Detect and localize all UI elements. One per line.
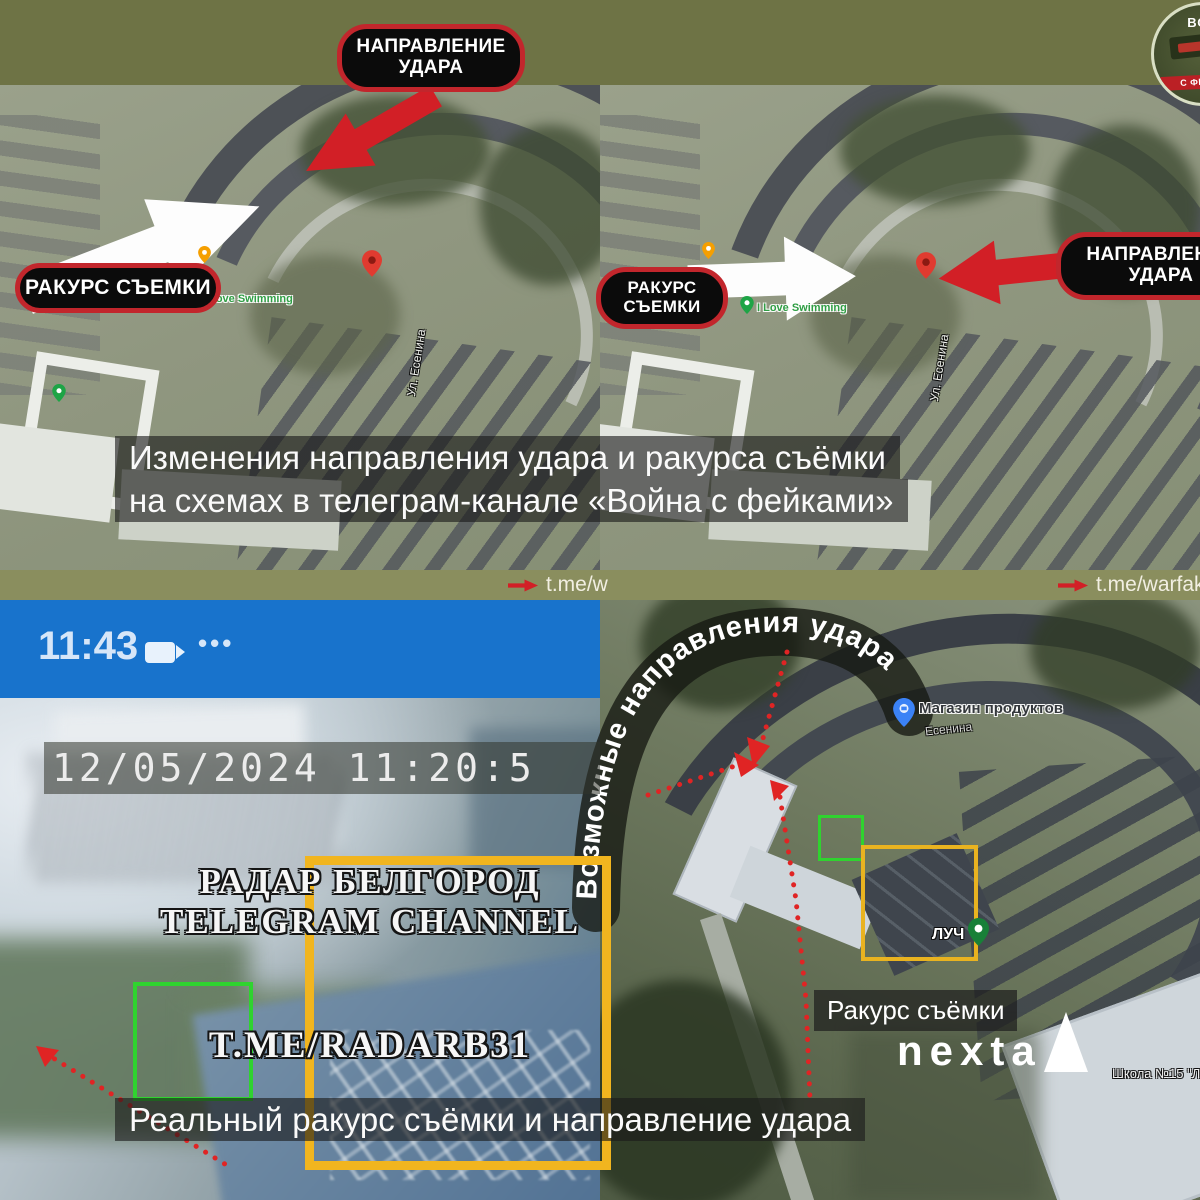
orange-map-pin (198, 246, 211, 263)
video-watermark-line3: T.ME/RADARB31 (75, 1024, 665, 1067)
nexta-logo-text: nexta (897, 1030, 1042, 1072)
cctv-timestamp-strip: 12/05/2024 11:20:5 (44, 742, 600, 794)
ellipsis-icon: ••• (198, 628, 234, 659)
center-caption-line2: на схемах в телеграм-канале «Война с фей… (115, 479, 908, 522)
telegram-link-left[interactable]: t.me/w (508, 573, 608, 597)
infographic-collage: t.me/w t.me/warfak 11:43 ••• 12/05/2024 … (0, 0, 1200, 1200)
strike-direction-label-tl: НАПРАВЛЕНИЕ УДАРА (337, 24, 525, 92)
telegram-link-left-label[interactable]: t.me/w (546, 573, 608, 597)
store-pin-icon (893, 698, 915, 727)
video-watermark-line2: TELEGRAM CHANNEL (75, 902, 665, 942)
red-arrow-icon (1058, 577, 1088, 594)
camera-angle-label-br-text: Ракурс съёмки (827, 995, 1004, 1025)
map-texture (0, 422, 120, 522)
red-map-pin (916, 252, 936, 279)
green-annotation-square (818, 815, 864, 861)
telegram-link-right[interactable]: t.me/warfak (1058, 573, 1200, 597)
map-texture (840, 95, 1030, 205)
green-place-pin (968, 918, 989, 946)
logo-top-text: ВОЙ (1154, 15, 1200, 30)
store-poi-label: Магазин продуктов (919, 700, 1063, 717)
red-arrow-icon (508, 577, 538, 594)
divider-band: t.me/w t.me/warfak (0, 570, 1200, 600)
video-camera-icon (145, 642, 175, 663)
video-watermark-line1: РАДАР БЕЛГОРОД (75, 862, 665, 902)
helicopter-icon (1169, 32, 1200, 59)
luch-poi-label: ЛУЧ (932, 926, 964, 944)
status-time: 11:43 (38, 624, 138, 669)
camera-angle-label-tl: РАКУРС СЪЕМКИ (15, 263, 221, 313)
cctv-timestamp: 12/05/2024 11:20:5 (44, 746, 536, 790)
center-caption-line1: Изменения направления удара и ракурса съ… (115, 436, 900, 479)
telegram-link-right-label[interactable]: t.me/warfak (1096, 573, 1200, 597)
orange-map-pin (702, 242, 715, 259)
poi-swimming-label-tr: I Love Swimming (757, 302, 847, 314)
center-caption: Изменения направления удара и ракурса съ… (115, 436, 908, 522)
strike-direction-label-tr: НАПРАВЛЕНИЕ УДАРА (1056, 232, 1200, 300)
green-map-pin (52, 384, 66, 402)
map-texture (600, 115, 700, 395)
bottom-caption-line: Реальный ракурс съёмки и направление уда… (115, 1098, 865, 1141)
bottom-caption: Реальный ракурс съёмки и направление уда… (115, 1098, 865, 1141)
camera-angle-label-tr: РАКУРС СЪЕМКИ (596, 267, 728, 329)
camera-angle-label-br: Ракурс съёмки (814, 990, 1017, 1031)
green-map-pin (740, 296, 754, 314)
nexta-logo-triangle-icon (1044, 1012, 1088, 1072)
logo-bottom-text: С ФЕЙК (1160, 73, 1200, 91)
school-poi-label: Школа №15 "Л (1112, 1066, 1200, 1081)
phone-status-bar: 11:43 ••• (0, 600, 600, 698)
red-map-pin (362, 250, 382, 277)
